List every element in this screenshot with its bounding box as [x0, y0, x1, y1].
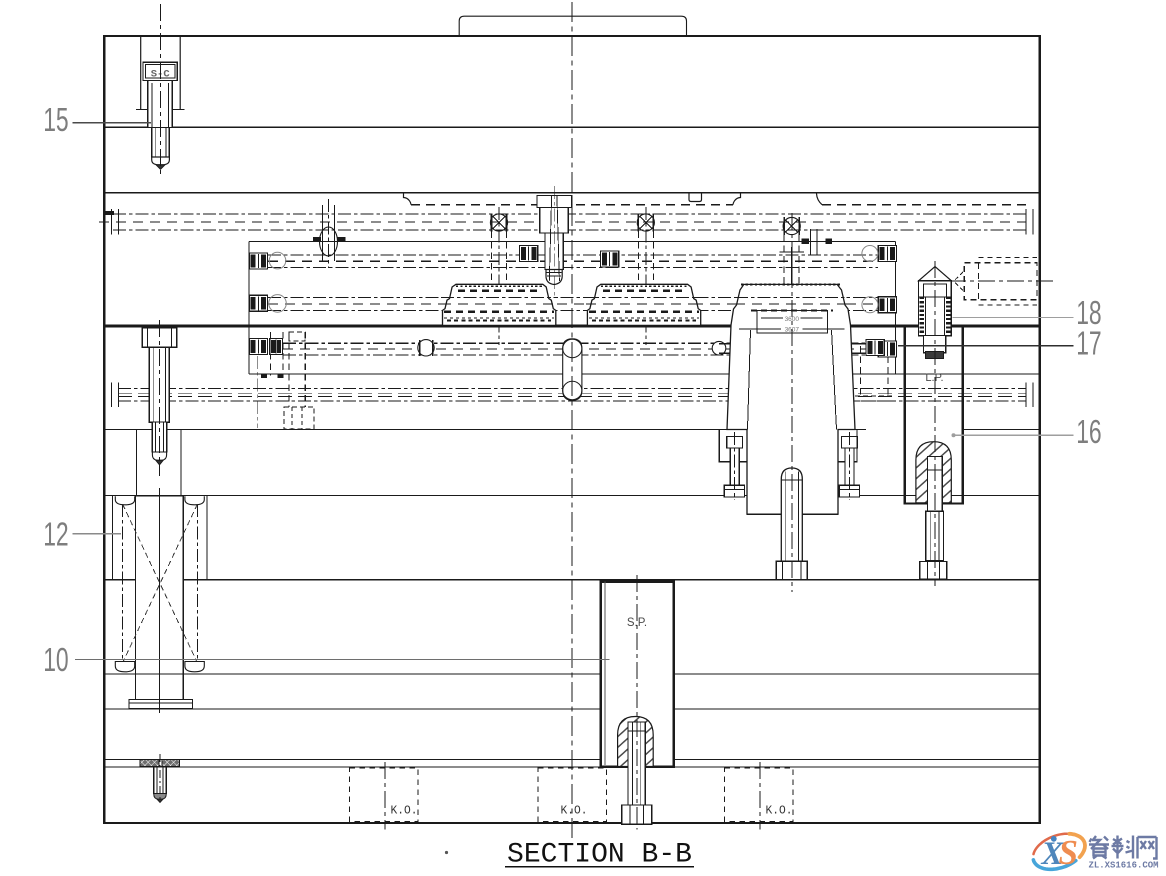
- svg-text:12: 12: [43, 516, 68, 553]
- svg-text:K.O.: K.O.: [391, 804, 418, 818]
- svg-text:16: 16: [1076, 413, 1102, 450]
- svg-text:17: 17: [1076, 325, 1102, 362]
- svg-text:S: S: [1059, 833, 1078, 872]
- svg-text:15: 15: [43, 101, 68, 138]
- svg-text:ZL.XS1616.COM: ZL.XS1616.COM: [1089, 860, 1159, 871]
- svg-text:K.O.: K.O.: [561, 804, 588, 818]
- svg-text:K.O.: K.O.: [766, 804, 793, 818]
- svg-text:10: 10: [43, 641, 68, 678]
- svg-text:L.P.: L.P.: [925, 372, 943, 384]
